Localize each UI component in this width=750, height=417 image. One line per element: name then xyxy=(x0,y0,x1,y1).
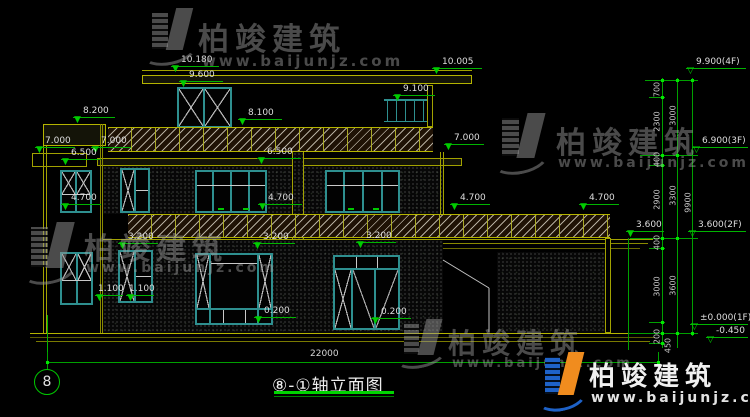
level-triangle-icon: ▽ xyxy=(689,230,696,239)
level-triangle-icon: ▼ xyxy=(451,203,458,212)
elevation-drawing-canvas: 700 2300 400 2900 400 3000 200 450 3000 … xyxy=(0,0,750,417)
level-1100-b: 1.100▼ xyxy=(126,284,154,296)
level-10005: 10.005▼ xyxy=(432,57,482,69)
level-triangle-icon: ▼ xyxy=(394,94,401,103)
level-4700-d: 4.700▼ xyxy=(579,193,619,205)
level-0200-b: 0.200▼ xyxy=(371,307,411,319)
watermark-url: www.baijunjz.com xyxy=(202,52,403,70)
level-7000-b: 7.000▼ xyxy=(91,136,131,148)
level-0000-1f: ±0.000(1F)▽ xyxy=(690,313,748,325)
level-6500-a: 6.500▼ xyxy=(61,148,101,160)
level-0200-a: 0.200▼ xyxy=(254,306,296,318)
level-4700-c: 4.700▼ xyxy=(450,193,490,205)
vdim-3600: 3600 xyxy=(669,271,678,301)
level-6900-3f: 6.900(3F)▽ xyxy=(692,136,748,148)
level-triangle-icon: ▼ xyxy=(74,116,81,125)
title-underline-2 xyxy=(274,396,394,397)
brand-logo-icon xyxy=(537,352,587,412)
level-triangle-icon: ▼ xyxy=(62,158,69,167)
level-triangle-icon: ▼ xyxy=(259,203,266,212)
level-triangle-icon: ▽ xyxy=(691,323,698,332)
dim-stub xyxy=(630,238,698,239)
level-triangle-icon: ▼ xyxy=(62,203,69,212)
level-triangle-icon: ▼ xyxy=(239,118,246,127)
title-underline xyxy=(274,391,394,394)
level-triangle-icon: ▼ xyxy=(580,203,587,212)
vdim-3300: 3300 xyxy=(669,181,678,211)
level-triangle-icon: ▼ xyxy=(172,65,179,74)
level-8200: 8.200▼ xyxy=(73,106,115,118)
level-triangle-icon: ▼ xyxy=(36,146,43,155)
level-1100-a: 1.100▼ xyxy=(95,284,123,296)
level-3200-c: 3.200▼ xyxy=(356,231,396,243)
level-9600: 9.600▼ xyxy=(179,70,223,82)
watermark-brand: 柏竣建筑 xyxy=(589,356,717,393)
watermark-url: www.baijunjz.com xyxy=(591,390,750,406)
level-7000-a: 7.000▼ xyxy=(35,136,75,148)
level-triangle-icon: ▼ xyxy=(180,80,187,89)
vdim-700: 700 xyxy=(653,75,662,105)
level-triangle-icon: ▼ xyxy=(357,241,364,250)
axis-bubble-8: 8 xyxy=(34,369,60,395)
level-triangle-icon: ▼ xyxy=(433,67,440,76)
level-triangle-icon: ▼ xyxy=(372,317,379,326)
level-4700-b: 4.700▼ xyxy=(258,193,302,205)
level-triangle-icon: ▽ xyxy=(707,336,714,345)
level-triangle-icon: ▼ xyxy=(254,242,261,251)
level-3600-2f: 3.600(2F)▽ xyxy=(688,220,746,232)
level-minus-0450: -0.450▽ xyxy=(706,326,748,338)
level-triangle-icon: ▼ xyxy=(96,294,103,303)
level-6500-b: 6.500▼ xyxy=(257,147,301,159)
total-dim-text: 22000 xyxy=(310,349,339,359)
level-4700-a: 4.700▼ xyxy=(61,193,101,205)
level-triangle-icon: ▼ xyxy=(445,143,452,152)
watermark-url: www.baijunjz.com xyxy=(86,260,277,276)
brand-logo-icon xyxy=(22,222,78,286)
vdim-3000: 3000 xyxy=(653,272,662,302)
level-triangle-icon: ▼ xyxy=(255,316,262,325)
level-triangle-icon: ▼ xyxy=(127,294,134,303)
level-triangle-icon: ▼ xyxy=(627,230,634,239)
watermark-url: www.baijunjz.com xyxy=(558,155,749,171)
level-9100: 9.100▼ xyxy=(393,84,435,96)
level-triangle-icon: ▼ xyxy=(258,157,265,166)
vdim-9900: 9900 xyxy=(684,188,693,218)
brand-logo-icon xyxy=(143,8,197,66)
vdim-2900: 2900 xyxy=(653,185,662,215)
level-3200-b: 3.200▼ xyxy=(253,232,295,244)
vdim-200: 200 xyxy=(653,322,662,352)
level-triangle-icon: ▽ xyxy=(687,67,694,76)
brand-logo-icon xyxy=(493,113,549,175)
level-8100: 8.100▼ xyxy=(238,108,282,120)
vdim-400b: 400 xyxy=(653,228,662,258)
level-3600: 3.600▼ xyxy=(626,220,664,232)
brand-logo-icon xyxy=(396,319,446,369)
level-7000-c: 7.000▼ xyxy=(444,133,484,145)
level-9900-4f: 9.900(4F)▽ xyxy=(686,57,746,69)
